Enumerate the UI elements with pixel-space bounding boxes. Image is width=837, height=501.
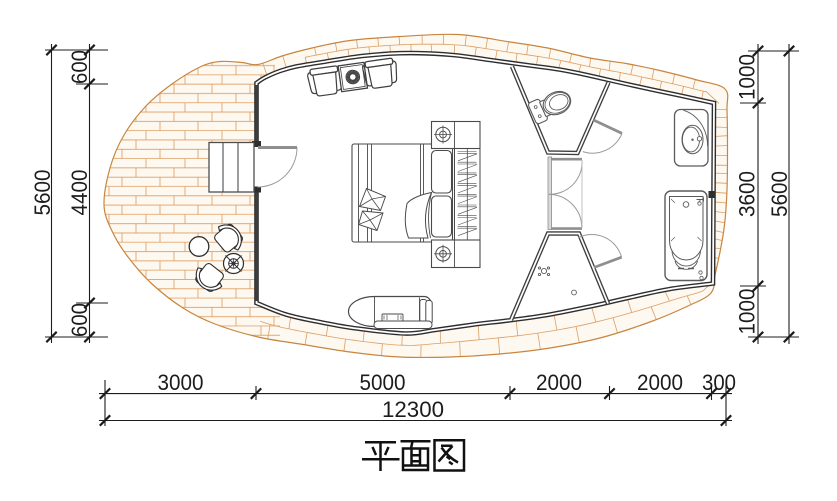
svg-text:1000: 1000: [735, 289, 760, 335]
svg-text:2000: 2000: [536, 370, 582, 395]
svg-text:2000: 2000: [637, 370, 683, 395]
svg-text:300: 300: [702, 370, 736, 395]
svg-text:600: 600: [67, 50, 92, 84]
svg-text:5600: 5600: [30, 170, 55, 216]
svg-text:3000: 3000: [158, 370, 204, 395]
svg-text:12300: 12300: [382, 397, 444, 422]
svg-text:600: 600: [67, 303, 92, 337]
svg-text:3600: 3600: [735, 171, 760, 217]
svg-text:5000: 5000: [360, 370, 406, 395]
svg-text:1000: 1000: [735, 54, 760, 100]
svg-text:5600: 5600: [767, 171, 792, 217]
svg-text:4400: 4400: [67, 170, 92, 216]
